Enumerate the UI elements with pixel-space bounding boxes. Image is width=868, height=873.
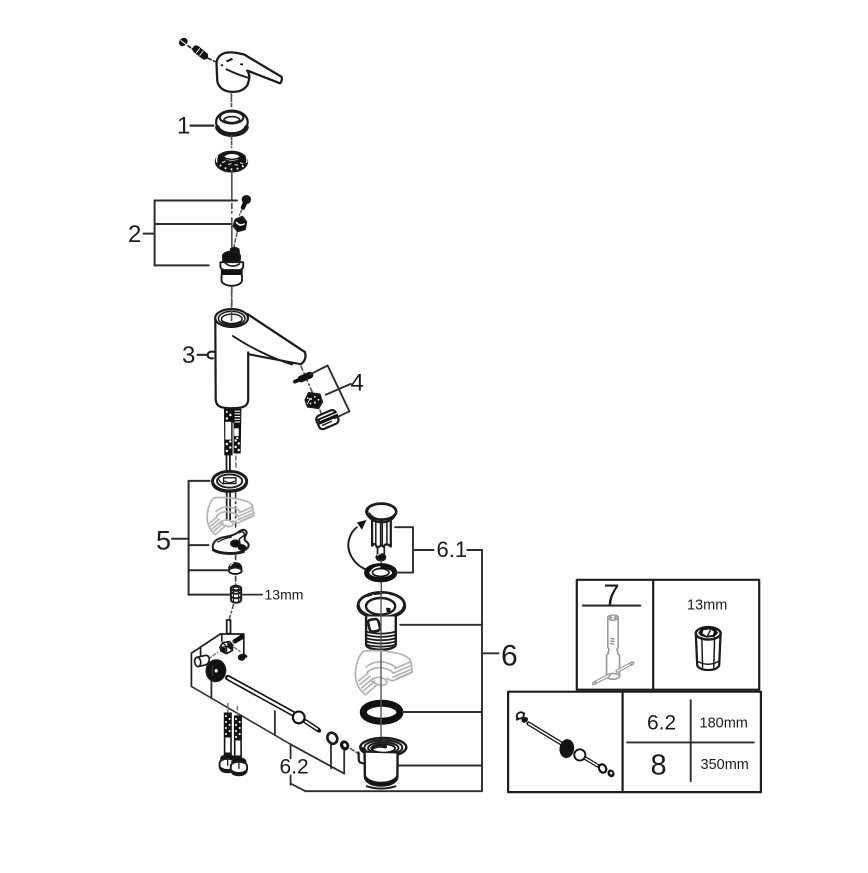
svg-text:2: 2 [128,221,141,248]
svg-text:6.2: 6.2 [647,712,676,735]
svg-text:350mm: 350mm [701,757,749,773]
svg-text:4: 4 [351,370,364,397]
svg-text:5: 5 [156,526,171,556]
svg-text:1: 1 [177,113,190,140]
svg-text:6: 6 [501,640,518,673]
svg-text:180mm: 180mm [700,716,748,732]
svg-text:8: 8 [651,750,667,782]
svg-text:13mm: 13mm [265,587,304,603]
svg-text:6.1: 6.1 [437,537,468,562]
svg-text:7: 7 [604,580,620,612]
svg-text:3: 3 [182,342,195,369]
svg-text:6.2: 6.2 [280,756,309,779]
svg-text:13mm: 13mm [687,598,727,614]
